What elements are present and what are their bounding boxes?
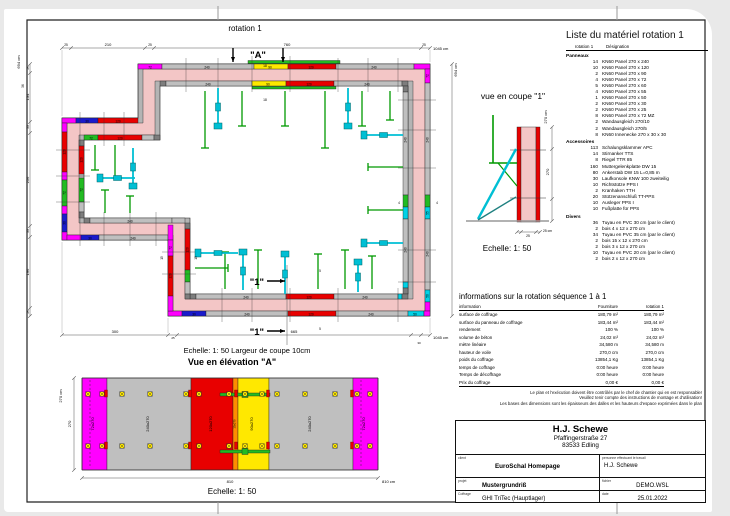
info-row-rotation: 270,0 cm: [618, 349, 664, 357]
coffrage-value: GHI TriTec (Hauptlager): [456, 491, 599, 502]
info-table-row: surface du panneau de coffrage 183,44 m²…: [459, 319, 664, 327]
svg-text:30: 30: [26, 229, 30, 233]
info-table-rows: surface de coffrage 180,79 m² 180,79 m² …: [459, 311, 664, 387]
worker-label: personne effectuant le travail: [602, 456, 645, 460]
material-item: 2 bois 2 x 12 x 270 cm: [566, 256, 708, 262]
svg-text:30: 30: [88, 237, 92, 241]
svg-text:15: 15: [194, 256, 198, 260]
svg-text:240: 240: [205, 82, 211, 86]
svg-text:1045 cm: 1045 cm: [433, 46, 449, 51]
material-list-title: Liste du matériel rotation 1: [566, 30, 708, 41]
info-row-fourniture: 34,580 m: [566, 341, 618, 349]
material-section: Divers 36 Tuyau en PVC 30 cm (par le cli…: [566, 215, 708, 263]
title-block-row-project: projet Mustergrundriß fichier DEMO.WSL: [456, 478, 705, 491]
rotation-info-table: informations sur la rotation séquence 1 …: [459, 292, 664, 387]
svg-text:4: 4: [398, 201, 400, 205]
svg-text:Echelle: 1: 50 Largeur de co: Echelle: 1: 50 Largeur de coupe 10cm: [184, 346, 311, 355]
svg-text:90: 90: [266, 82, 270, 86]
info-table-row: rendement 100 % 100 %: [459, 326, 664, 334]
svg-text:25: 25: [171, 336, 175, 340]
client-label: client: [458, 456, 466, 460]
info-row-label: rendement: [459, 326, 566, 334]
svg-text:240: 240: [368, 313, 374, 317]
material-items: 14 KN60 Panel 270 x 240 10 KN60 Panel 27…: [566, 59, 708, 138]
company-name: H.J. Schewe: [456, 421, 705, 435]
svg-text:120: 120: [117, 136, 123, 140]
material-item-qty: 2: [566, 256, 602, 262]
svg-text:270: 270: [545, 168, 550, 175]
svg-text:120: 120: [186, 247, 190, 253]
info-row-label: Temps de décoffrage: [459, 371, 566, 379]
info-row-rotation: 0:00 heure: [618, 371, 664, 379]
info-table-row: Prix du coffrage 0,00 € 0,00 €: [459, 379, 664, 387]
svg-text:300: 300: [112, 329, 119, 334]
info-table-row: volume de béton 24,02 m³ 24,02 m³: [459, 334, 664, 342]
info-row-label: surface de coffrage: [459, 311, 566, 319]
info-row-rotation: 24,02 m³: [618, 334, 664, 342]
svg-text:240: 240: [127, 219, 133, 223]
info-row-rotation: 0,00 €: [618, 379, 664, 387]
material-list: Liste du matériel rotation 1 rotation 1 …: [566, 30, 708, 262]
svg-text:30: 30: [63, 221, 67, 225]
svg-text:240: 240: [371, 65, 377, 69]
svg-text:120: 120: [308, 313, 314, 317]
info-table-row: poids du coffrage 13854,1 Kg 13854,1 Kg: [459, 356, 664, 364]
svg-text:120: 120: [169, 273, 173, 279]
project-label: projet: [458, 479, 466, 483]
project-cell: projet Mustergrundriß: [456, 478, 600, 490]
svg-text:694 cm: 694 cm: [453, 63, 458, 77]
info-row-rotation: 0:00 heure: [618, 364, 664, 372]
info-row-rotation: 100 %: [618, 326, 664, 334]
material-list-header: rotation 1 Désignation: [566, 44, 708, 51]
svg-text:134: 134: [25, 93, 30, 100]
coffrage-label: Coffrage: [458, 492, 471, 496]
svg-text:25: 25: [64, 43, 68, 47]
svg-text:25: 25: [422, 43, 426, 47]
company-street: Pfaffingerstraße 27: [456, 435, 705, 442]
svg-text:72x270: 72x270: [361, 417, 366, 431]
svg-text:72: 72: [63, 191, 67, 195]
svg-text:72: 72: [426, 74, 430, 78]
project-value: Mustergrundriß: [456, 478, 599, 489]
info-row-rotation: 180,79 m²: [618, 311, 664, 319]
svg-text:196: 196: [25, 268, 30, 275]
svg-text:15x270: 15x270: [233, 419, 237, 429]
material-item: 10 Fußplatte für PPS: [566, 206, 708, 212]
svg-text:5: 5: [319, 269, 321, 273]
svg-text:270: 270: [67, 420, 72, 427]
svg-text:36: 36: [21, 84, 25, 88]
svg-text:72x270: 72x270: [90, 417, 95, 431]
svg-text:270 cm: 270 cm: [58, 389, 63, 403]
svg-text:240: 240: [404, 247, 408, 253]
svg-text:50: 50: [426, 294, 430, 298]
material-item-name: bois 2 x 12 x 270 cm: [602, 256, 708, 262]
info-table-title: informations sur la rotation séquence 1 …: [459, 292, 664, 301]
info-row-rotation: 183,44 m²: [618, 319, 664, 327]
info-table-header: information Fourniture rotation 1: [459, 303, 664, 311]
info-row-fourniture: 24,02 m³: [566, 334, 618, 342]
company-city: 83533 Edling: [456, 442, 705, 449]
info-col-fourniture: Fourniture: [566, 304, 618, 309]
info-row-label: temps de coffrage: [459, 364, 566, 372]
svg-text:18: 18: [263, 64, 267, 68]
svg-text:120: 120: [306, 82, 312, 86]
disclaimer-notes: Le plan et l'exécution doivent être cont…: [438, 390, 702, 406]
date-value: 25.01.2022: [600, 491, 705, 502]
svg-text:25: 25: [148, 43, 152, 47]
material-sections: Panneaux 14 KN60 Panel 270 x 240 10 KN60…: [566, 54, 708, 263]
info-table-row: hauteur de voile 270,0 cm 270,0 cm: [459, 349, 664, 357]
svg-text:240: 240: [426, 251, 430, 257]
material-item: 8 KN60 Innenecke 270 x 30 x 30: [566, 132, 708, 138]
material-section: Panneaux 14 KN60 Panel 270 x 240 10 KN60…: [566, 54, 708, 138]
svg-text:240: 240: [243, 295, 249, 299]
svg-text:Vue en élévation "A": Vue en élévation "A": [188, 357, 276, 367]
info-row-label: hauteur de voile: [459, 349, 566, 357]
svg-text:"1": "1": [250, 327, 264, 338]
material-section: Accessoires 113 Schalungsklammer APC 14 …: [566, 140, 708, 212]
info-row-fourniture: 0,00 €: [566, 379, 618, 387]
svg-text:256: 256: [25, 176, 30, 183]
material-col-rotation: rotation 1: [566, 44, 602, 49]
svg-text:25: 25: [526, 234, 530, 238]
svg-text:4: 4: [436, 201, 438, 205]
svg-text:210: 210: [105, 42, 112, 47]
svg-text:50: 50: [413, 313, 417, 317]
info-row-label: surface du panneau de coffrage: [459, 319, 566, 327]
info-row-label: poids du coffrage: [459, 356, 566, 364]
info-col-information: information: [459, 304, 566, 309]
svg-text:120x270: 120x270: [208, 416, 213, 432]
info-row-label: volume de béton: [459, 334, 566, 342]
svg-text:72: 72: [169, 246, 173, 250]
info-row-fourniture: 13854,1 Kg: [566, 356, 618, 364]
svg-text:810 cm: 810 cm: [382, 479, 396, 484]
title-block-header: H.J. Schewe Pfaffingerstraße 27 83533 Ed…: [456, 421, 705, 455]
svg-text:25 cm: 25 cm: [543, 229, 552, 233]
svg-text:120: 120: [63, 149, 67, 155]
title-block-row-coffrage: Coffrage GHI TriTec (Hauptlager) date 25…: [456, 491, 705, 503]
material-item-name: KN60 Innenecke 270 x 30 x 30: [602, 132, 708, 138]
svg-text:90x270: 90x270: [249, 417, 254, 431]
svg-text:Echelle: 1: 50: Echelle: 1: 50: [208, 487, 257, 496]
title-block-row-client: client EuroSchal Homepage personne effec…: [456, 455, 705, 478]
info-table-row: mètre linéaire 34,580 m 34,580 m: [459, 341, 664, 349]
svg-text:240: 240: [404, 137, 408, 143]
drawing-sheet: { "materials": { "title": "Liste du maté…: [0, 0, 730, 516]
svg-text:vue en coupe "1": vue en coupe "1": [481, 91, 545, 101]
svg-text:rotation 1: rotation 1: [228, 24, 262, 33]
svg-text:240: 240: [426, 137, 430, 143]
worker-cell: personne effectuant le travail H.J. Sche…: [600, 455, 705, 477]
svg-text:665: 665: [291, 329, 298, 334]
info-col-rotation: rotation 1: [618, 304, 664, 309]
info-row-rotation: 34,580 m: [618, 341, 664, 349]
svg-text:240x270: 240x270: [307, 416, 312, 432]
material-item-qty: 10: [566, 206, 602, 212]
svg-text:"1": "1": [250, 277, 264, 288]
disclaimer-line: Les bases des dimensions sont les épaiss…: [438, 401, 702, 406]
client-cell: client EuroSchal Homepage: [456, 455, 600, 477]
material-col-designation: Désignation: [606, 44, 629, 49]
date-cell: date 25.01.2022: [600, 491, 705, 503]
svg-text:30: 30: [417, 341, 421, 345]
material-item-qty: 8: [566, 132, 602, 138]
svg-text:25: 25: [26, 310, 30, 314]
material-items: 36 Tuyau en PVC 30 cm (par le client) 2 …: [566, 220, 708, 263]
svg-text:240: 240: [244, 313, 250, 317]
svg-text:90: 90: [268, 65, 272, 69]
svg-text:694 cm: 694 cm: [16, 55, 21, 69]
svg-text:270 cm: 270 cm: [543, 110, 548, 124]
info-row-fourniture: 0:00 heure: [566, 364, 618, 372]
info-table-row: Temps de décoffrage 0:00 heure 0:00 heur…: [459, 371, 664, 379]
svg-text:1045 cm: 1045 cm: [433, 335, 449, 340]
svg-text:"A": "A": [250, 50, 266, 61]
svg-text:120: 120: [115, 120, 121, 124]
date-label: date: [602, 492, 609, 496]
svg-text:120: 120: [80, 157, 84, 163]
info-row-fourniture: 0:00 heure: [566, 371, 618, 379]
svg-text:760: 760: [284, 42, 291, 47]
svg-text:18: 18: [263, 98, 267, 102]
file-label: fichier: [602, 479, 611, 483]
material-item-name: Fußplatte für PPS: [602, 206, 708, 212]
coffrage-cell: Coffrage GHI TriTec (Hauptlager): [456, 491, 600, 503]
info-row-rotation: 13854,1 Kg: [618, 356, 664, 364]
info-row-label: Prix du coffrage: [459, 379, 566, 387]
material-items: 113 Schalungsklammer APC 14 Stirnanker T…: [566, 145, 708, 212]
title-block: H.J. Schewe Pfaffingerstraße 27 83533 Ed…: [455, 420, 706, 503]
svg-text:240: 240: [204, 65, 210, 69]
info-row-label: mètre linéaire: [459, 341, 566, 349]
svg-text:240: 240: [362, 295, 368, 299]
svg-text:120: 120: [308, 65, 314, 69]
svg-text:Echelle: 1: 50: Echelle: 1: 50: [483, 244, 532, 253]
svg-text:240x270: 240x270: [145, 416, 150, 432]
svg-text:240: 240: [364, 82, 370, 86]
info-row-fourniture: 100 %: [566, 326, 618, 334]
client-value: EuroSchal Homepage: [456, 455, 599, 470]
info-table-row: surface de coffrage 180,79 m² 180,79 m²: [459, 311, 664, 319]
info-row-fourniture: 270,0 cm: [566, 349, 618, 357]
svg-text:810: 810: [227, 479, 234, 484]
svg-text:72: 72: [80, 188, 84, 192]
svg-text:72: 72: [89, 136, 93, 140]
info-table-row: temps de coffrage 0:00 heure 0:00 heure: [459, 364, 664, 372]
info-row-fourniture: 183,44 m²: [566, 319, 618, 327]
svg-text:120: 120: [306, 295, 312, 299]
svg-text:15: 15: [160, 256, 164, 260]
file-value: DEMO.WSL: [600, 478, 705, 489]
svg-text:30: 30: [85, 120, 89, 124]
svg-text:30: 30: [26, 125, 30, 129]
svg-text:30: 30: [192, 313, 196, 317]
svg-text:72: 72: [148, 65, 152, 69]
svg-text:240: 240: [130, 237, 136, 241]
svg-text:5: 5: [319, 327, 321, 331]
info-row-fourniture: 180,79 m²: [566, 311, 618, 319]
svg-text:25: 25: [26, 66, 30, 70]
file-cell: fichier DEMO.WSL: [600, 478, 705, 490]
svg-text:55: 55: [426, 211, 430, 215]
